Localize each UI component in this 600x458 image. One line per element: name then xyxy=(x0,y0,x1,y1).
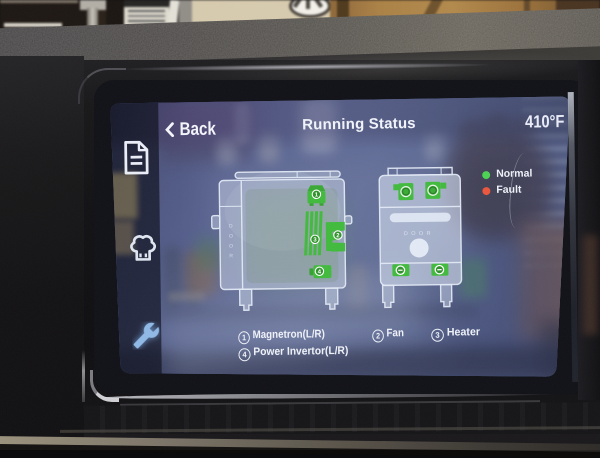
svg-text:DOOR: DOOR xyxy=(404,231,434,237)
svg-text:O: O xyxy=(229,233,233,239)
svg-text:R: R xyxy=(229,253,233,259)
svg-text:D: D xyxy=(229,223,233,229)
svg-text:O: O xyxy=(229,243,233,249)
